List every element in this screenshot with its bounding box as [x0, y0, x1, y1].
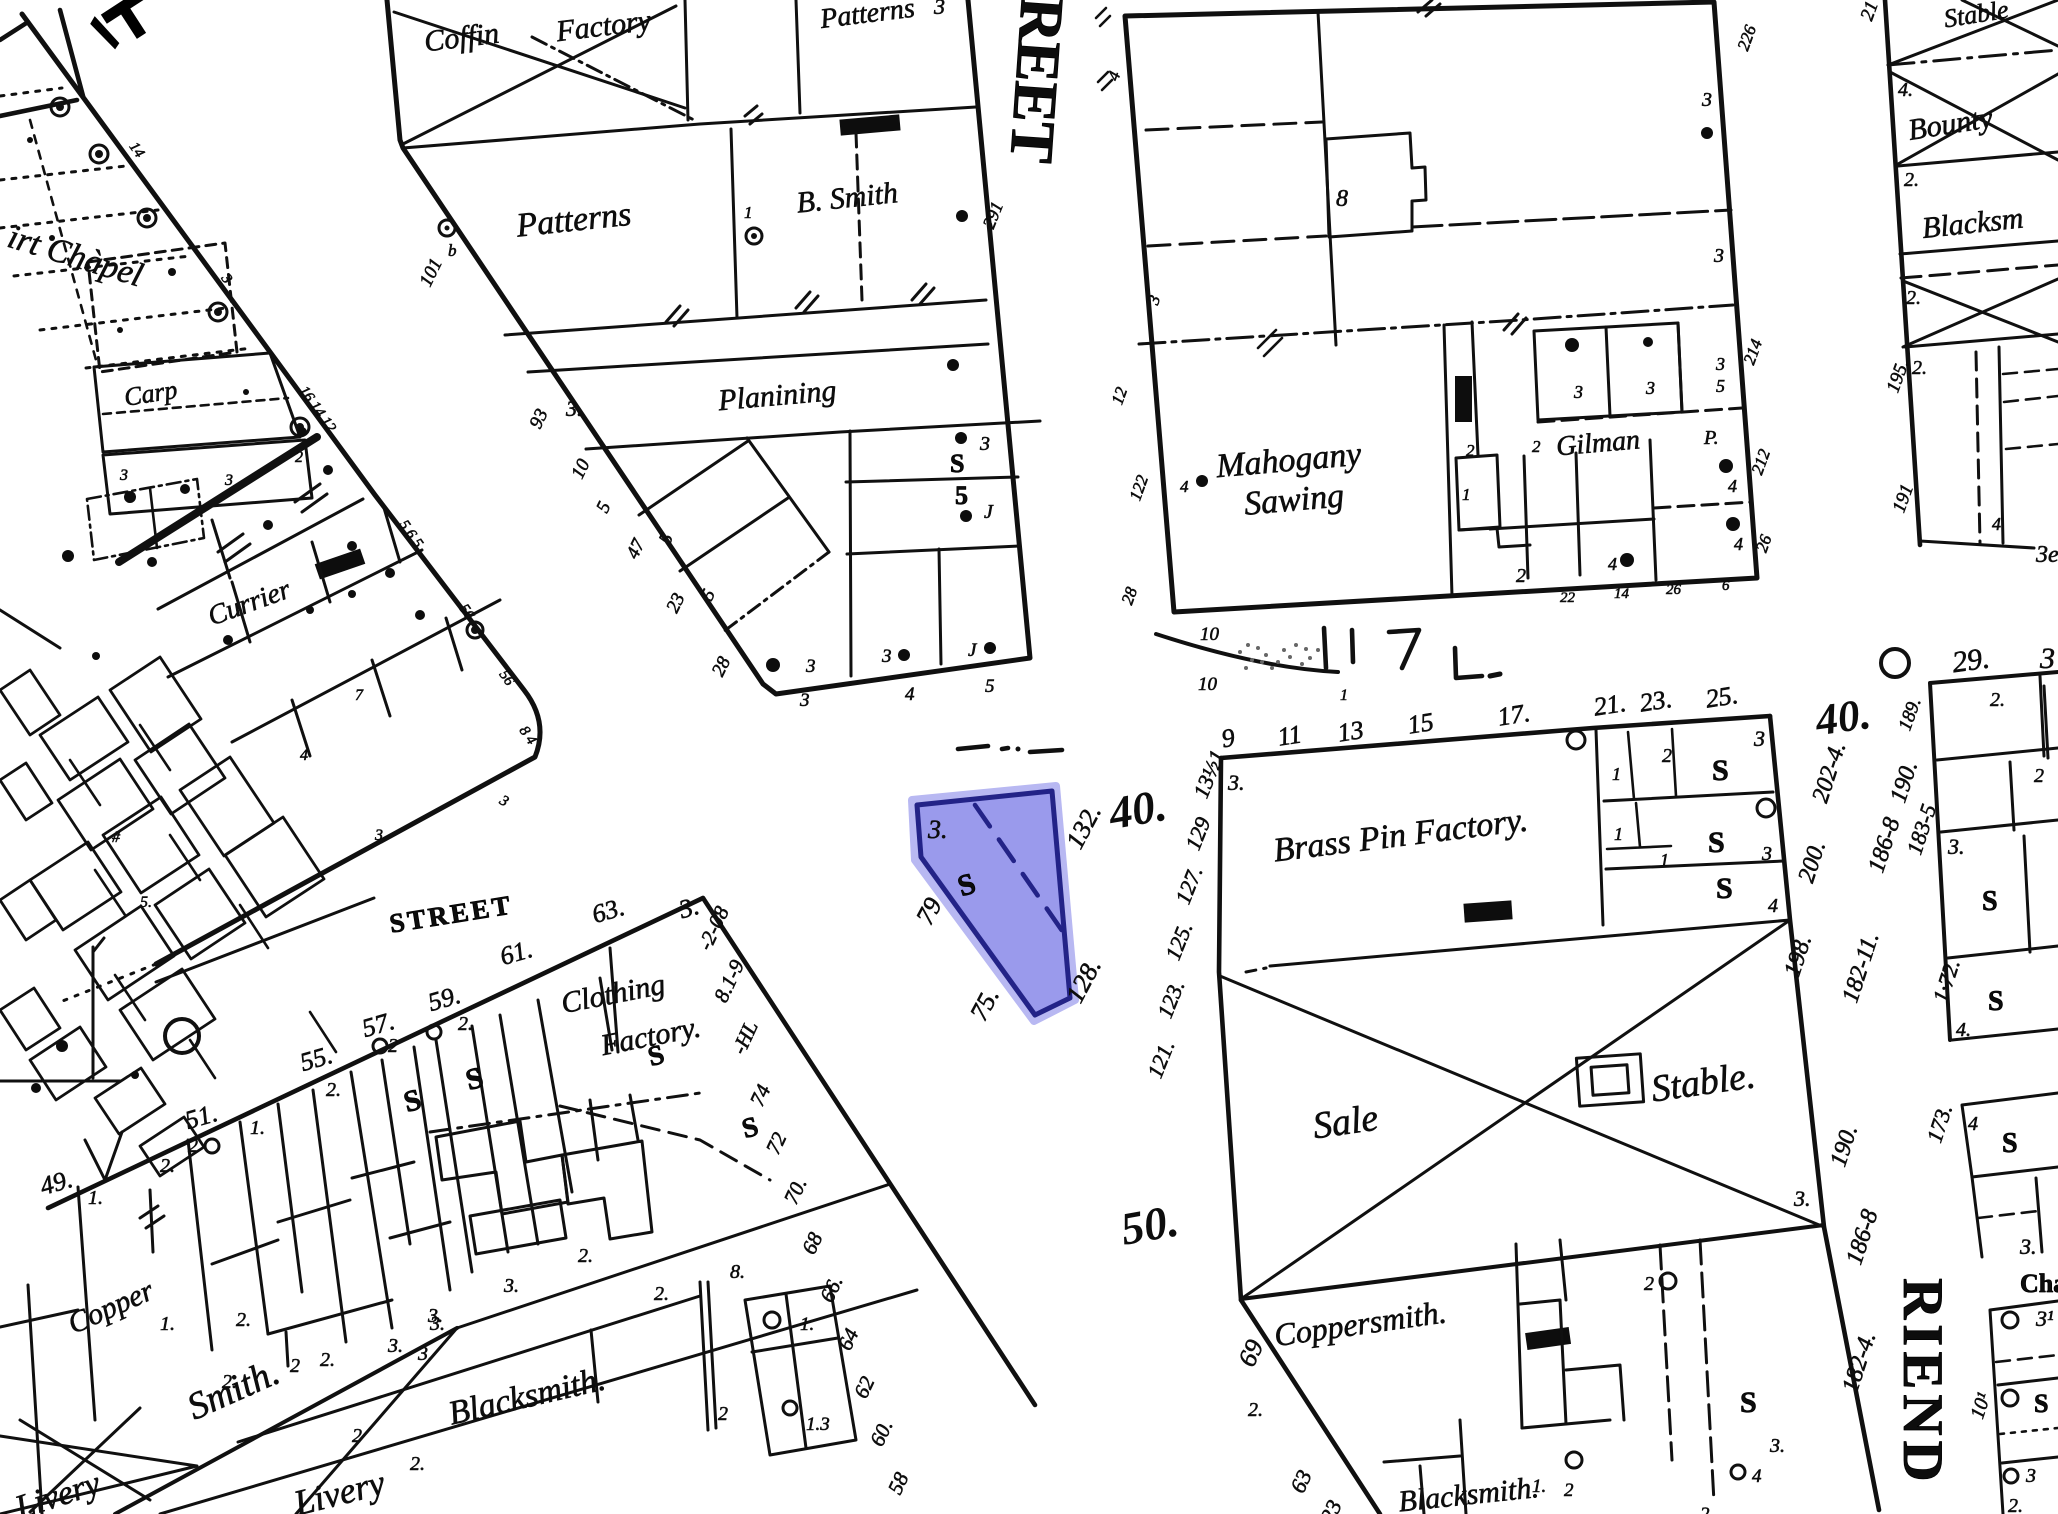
svg-text:5: 5	[985, 676, 995, 697]
svg-text:2.: 2.	[236, 1309, 251, 1331]
svg-text:10: 10	[1200, 624, 1220, 645]
svg-text:13: 13	[1335, 715, 1365, 748]
svg-text:8: 8	[1336, 186, 1348, 212]
svg-text:2.: 2.	[410, 1453, 425, 1475]
svg-text:1: 1	[1614, 824, 1623, 844]
svg-text:1.3: 1.3	[806, 1414, 830, 1435]
svg-text:4: 4	[1608, 554, 1617, 574]
svg-text:1.: 1.	[160, 1313, 175, 1335]
svg-text:S: S	[2034, 1389, 2048, 1418]
svg-text:3.: 3.	[2019, 1234, 2037, 1259]
svg-text:3: 3	[1761, 843, 1772, 865]
svg-text:3.: 3.	[427, 1305, 443, 1327]
svg-text:3.: 3.	[503, 1275, 519, 1297]
svg-text:3: 3	[1753, 726, 1765, 751]
svg-text:2: 2	[1516, 565, 1526, 587]
svg-text:3.: 3.	[565, 396, 583, 421]
svg-text:21.: 21.	[1591, 688, 1628, 722]
svg-text:3.: 3.	[1793, 1186, 1811, 1211]
svg-text:2: 2	[295, 449, 303, 466]
svg-text:2.: 2.	[1912, 357, 1927, 379]
svg-text:4: 4	[1728, 476, 1737, 496]
svg-text:3.: 3.	[1947, 834, 1965, 859]
svg-text:2.: 2.	[578, 1245, 593, 1267]
svg-text:3: 3	[224, 472, 233, 489]
svg-text:4: 4	[1180, 477, 1189, 496]
svg-text:2.: 2.	[222, 1371, 237, 1393]
svg-text:6: 6	[1722, 578, 1730, 594]
svg-text:P.: P.	[1703, 427, 1719, 449]
svg-text:S: S	[950, 449, 964, 478]
svg-text:10: 10	[1198, 674, 1218, 695]
svg-text:3.: 3.	[1227, 770, 1245, 795]
svg-text:3: 3	[1701, 89, 1712, 111]
svg-text:3¹: 3¹	[2035, 1306, 2054, 1331]
svg-text:1: 1	[744, 203, 753, 222]
svg-text:1.: 1.	[800, 1314, 814, 1335]
svg-text:2: 2	[1644, 1273, 1654, 1295]
svg-text:3е: 3е	[2035, 542, 2058, 568]
svg-text:2: 2	[1532, 437, 1541, 456]
svg-text:S: S	[1712, 754, 1729, 787]
svg-text:2: 2	[1700, 1504, 1710, 1514]
svg-text:2.: 2.	[326, 1079, 341, 1101]
svg-text:3: 3	[933, 0, 945, 19]
svg-text:40.: 40.	[1811, 689, 1873, 745]
svg-text:2: 2	[388, 1035, 398, 1057]
svg-text:4.: 4.	[1956, 1019, 1971, 1041]
svg-text:2.: 2.	[2008, 1495, 2023, 1514]
svg-text:3.: 3.	[927, 815, 948, 844]
svg-text:26: 26	[1666, 582, 1682, 598]
svg-text:S: S	[1708, 826, 1725, 859]
svg-text:3: 3	[1645, 378, 1655, 398]
svg-text:4: 4	[1768, 895, 1778, 917]
svg-text:3: 3	[2025, 1465, 2036, 1487]
svg-text:23.: 23.	[1637, 684, 1674, 718]
svg-text:3: 3	[881, 646, 892, 667]
svg-text:3: 3	[119, 467, 128, 484]
svg-text:2.: 2.	[160, 1155, 175, 1177]
svg-text:4: 4	[1752, 1466, 1762, 1487]
svg-text:1: 1	[1462, 485, 1471, 504]
svg-text:3: 3	[374, 827, 383, 844]
svg-text:1: 1	[1660, 850, 1669, 870]
svg-text:3.: 3.	[1769, 1435, 1785, 1457]
svg-text:40.: 40.	[1104, 779, 1170, 839]
svg-text:2.: 2.	[1904, 169, 1919, 191]
svg-text:S: S	[1982, 886, 1998, 917]
svg-text:25.: 25.	[1703, 680, 1740, 714]
svg-text:2: 2	[1466, 441, 1475, 460]
svg-text:Chа: Chа	[2020, 1269, 2058, 1298]
svg-text:2.: 2.	[1990, 689, 2005, 711]
svg-text:2: 2	[290, 1355, 300, 1377]
svg-text:S: S	[2002, 1128, 2018, 1159]
svg-text:3: 3	[1573, 382, 1583, 402]
svg-text:1: 1	[1340, 687, 1348, 704]
svg-text:2.: 2.	[458, 1013, 473, 1035]
svg-text:RIEND: RIEND	[1891, 1278, 1954, 1487]
svg-text:2.: 2.	[654, 1283, 669, 1305]
svg-text:3: 3	[799, 690, 810, 711]
svg-text:1.: 1.	[250, 1117, 265, 1139]
svg-text:4: 4	[300, 747, 308, 764]
svg-text:2.: 2.	[1906, 287, 1921, 309]
svg-text:REET: REET	[996, 0, 1075, 165]
svg-text:2: 2	[2034, 765, 2044, 787]
svg-text:S: S	[1988, 986, 2004, 1017]
svg-text:3: 3	[1715, 354, 1725, 374]
svg-text:4: 4	[1992, 514, 2001, 534]
svg-text:4: 4	[905, 684, 915, 705]
svg-text:2.: 2.	[1248, 1399, 1263, 1421]
svg-text:5: 5	[1716, 376, 1725, 396]
svg-text:11: 11	[1275, 719, 1303, 751]
svg-text:50.: 50.	[1117, 1195, 1182, 1255]
svg-text:22: 22	[1560, 590, 1576, 606]
svg-text:2: 2	[1564, 1480, 1574, 1501]
svg-text:J: J	[984, 501, 994, 523]
svg-text:1: 1	[1612, 764, 1621, 784]
svg-text:3: 3	[1713, 245, 1724, 267]
svg-text:3: 3	[979, 433, 990, 455]
svg-text:4: 4	[1734, 534, 1743, 554]
svg-text:3: 3	[805, 656, 816, 677]
svg-text:29.: 29.	[1950, 641, 1992, 679]
svg-text:14: 14	[1614, 586, 1630, 602]
svg-text:2: 2	[1662, 745, 1672, 767]
svg-text:7: 7	[355, 687, 364, 704]
svg-text:8.: 8.	[730, 1261, 745, 1283]
svg-text:S: S	[1716, 872, 1733, 905]
svg-text:2.: 2.	[320, 1349, 335, 1371]
svg-text:2: 2	[718, 1403, 728, 1425]
svg-text:3.: 3.	[387, 1335, 403, 1357]
svg-text:b: b	[448, 241, 457, 260]
svg-text:S: S	[1740, 1386, 1757, 1419]
svg-text:5: 5	[955, 481, 968, 510]
svg-text:17.: 17.	[1495, 698, 1532, 732]
svg-text:1.: 1.	[88, 1187, 103, 1209]
svg-text:3: 3	[2039, 642, 2055, 675]
svg-text:4: 4	[1968, 1113, 1978, 1135]
svg-text:15: 15	[1405, 707, 1435, 740]
